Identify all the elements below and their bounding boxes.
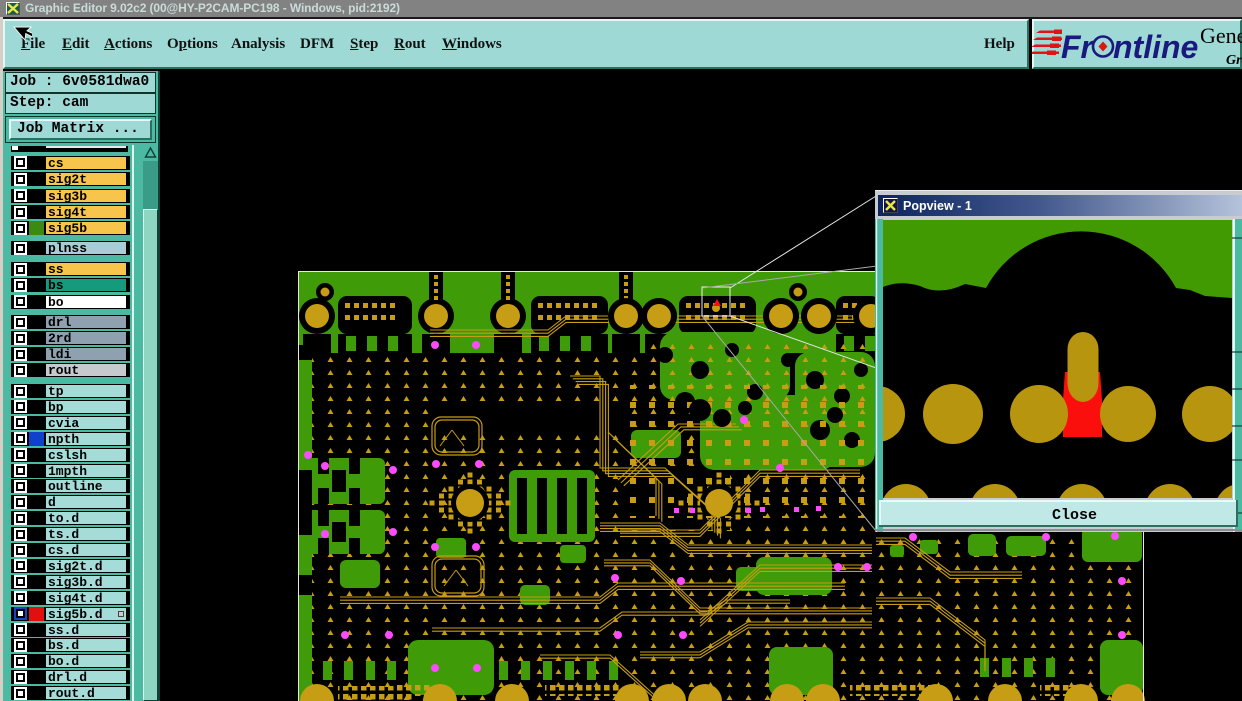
svg-text:Genesis: Genesis	[1200, 23, 1242, 48]
svg-text:Close: Close	[1052, 507, 1097, 524]
svg-text:ntline: ntline	[1113, 29, 1198, 65]
svg-text:Graphic: Graphic	[1226, 53, 1242, 68]
svg-text:Fr: Fr	[1061, 29, 1095, 65]
